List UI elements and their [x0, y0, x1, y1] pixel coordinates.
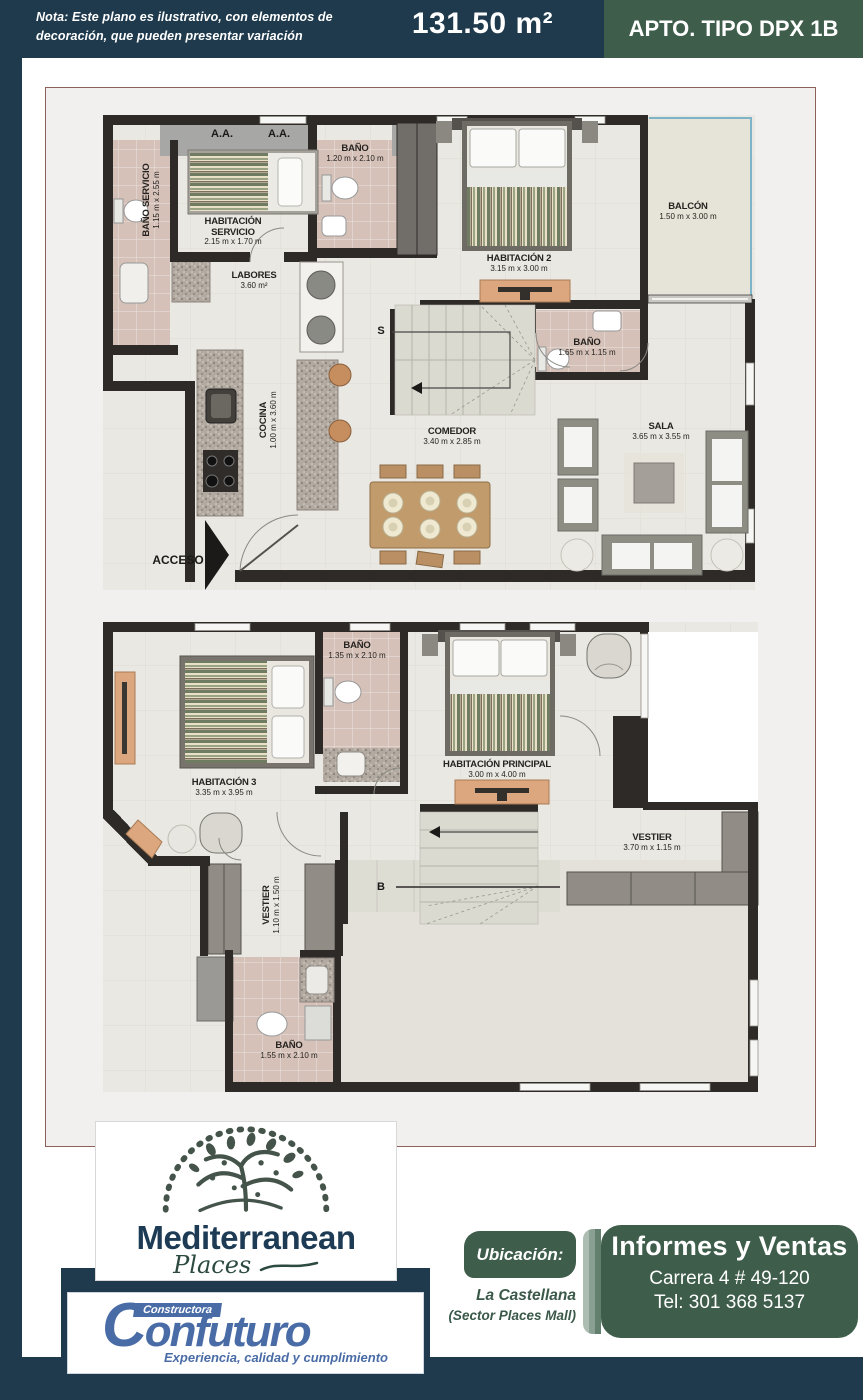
lower-floor-plan: BAÑO1.35 m x 2.10 m HABITACIÓN 33.35 m x… — [100, 620, 765, 1100]
location-line1: La Castellana — [430, 1286, 576, 1307]
lower-floor-plan-drawing — [100, 620, 765, 1100]
wardrobe-icon — [397, 123, 437, 255]
upper-floor-plan: BAÑO SERVICIO1.15 m x 2.55 m A.A. A.A. H… — [100, 113, 762, 592]
contact-phone: Tel: 301 368 5137 — [601, 1292, 858, 1314]
room-label-habitacion-3: HABITACIÓN 33.35 m x 3.95 m — [192, 778, 256, 798]
bed-icon — [422, 630, 576, 756]
tree-logo-icon — [136, 1126, 356, 1218]
bed-icon — [188, 150, 318, 214]
room-label-labores: LABORES3.60 m² — [231, 271, 276, 291]
armchair-icon — [587, 634, 631, 678]
room-label-habitacion-servicio: HABITACIÓN SERVICIO2.15 m x 1.70 m — [194, 217, 272, 247]
dresser-icon — [480, 280, 570, 302]
room-label-vestier-3: VESTIER1.10 m x 1.50 m — [262, 876, 282, 933]
brand-subname-text: Places — [173, 1251, 251, 1279]
header-bar: Nota: Este plano es ilustrativo, con ele… — [0, 0, 863, 58]
stairs-down-label: B — [377, 881, 385, 893]
room-label-balcon: BALCÓN1.50 m x 3.00 m — [659, 202, 716, 222]
contact-panel: Informes y Ventas Carrera 4 # 49-120 Tel… — [601, 1225, 858, 1338]
contact-title: Informes y Ventas — [601, 1231, 858, 1262]
room-label-bano-social: BAÑO1.65 m x 1.15 m — [558, 338, 615, 358]
sink-icon — [206, 389, 236, 423]
location-text: La Castellana (Sector Places Mall) — [430, 1286, 576, 1325]
sink-icon — [300, 958, 334, 1002]
stairs-up-label: S — [377, 325, 384, 337]
swoosh-icon — [259, 1259, 319, 1273]
mediterranean-logo-card: Mediterranean Places — [95, 1121, 397, 1281]
upper-floor-plan-drawing — [100, 113, 762, 592]
bed-icon — [180, 656, 314, 768]
room-label-vestier-principal: VESTIER3.70 m x 1.15 m — [623, 833, 680, 853]
apartment-area: 131.50 m² — [375, 7, 590, 41]
room-label-habitacion-principal: HABITACIÓN PRINCIPAL3.00 m x 4.00 m — [443, 760, 551, 780]
confuturo-logo-card: Constructora Confuturo Experiencia, cali… — [67, 1292, 424, 1374]
room-label-cocina: COCINA1.00 m x 3.60 m — [259, 391, 279, 448]
room-label-bano-servicio: BAÑO SERVICIO1.15 m x 2.55 m — [142, 163, 162, 236]
stove-icon — [203, 450, 238, 492]
washer-dryer-icon — [300, 262, 343, 352]
apartment-type-badge: APTO. TIPO DPX 1B — [604, 0, 863, 58]
location-line2: (Sector Places Mall) — [430, 1307, 576, 1325]
balcony-slider-icon — [648, 295, 752, 303]
constructora-badge: Constructora — [133, 1303, 222, 1317]
ac-unit-label: A.A. — [211, 128, 233, 140]
room-label-sala: SALA3.65 m x 3.55 m — [632, 422, 689, 442]
disclaimer-note: Nota: Este plano es ilustrativo, con ele… — [36, 8, 333, 46]
room-label-bano-3: BAÑO1.35 m x 2.10 m — [328, 641, 385, 661]
contact-address: Carrera 4 # 49-120 — [601, 1268, 858, 1290]
room-label-bano-2: BAÑO1.20 m x 2.10 m — [326, 144, 383, 164]
coffee-table-icon — [624, 453, 684, 513]
stairs-down-icon — [420, 812, 538, 924]
constructor-tagline: Experiencia, calidad y cumplimiento — [164, 1350, 388, 1365]
dresser-icon — [455, 780, 549, 804]
left-edge-stripe — [0, 0, 22, 1400]
stairs-up-icon — [392, 305, 535, 415]
room-label-bano-principal: BAÑO1.55 m x 2.10 m — [260, 1041, 317, 1061]
room-label-habitacion-2: HABITACIÓN 23.15 m x 3.00 m — [487, 254, 551, 274]
location-badge: Ubicación: — [464, 1231, 576, 1278]
room-label-comedor: COMEDOR3.40 m x 2.85 m — [423, 427, 480, 447]
access-label: ACCESO — [152, 553, 203, 567]
ac-unit-label: A.A. — [268, 128, 290, 140]
